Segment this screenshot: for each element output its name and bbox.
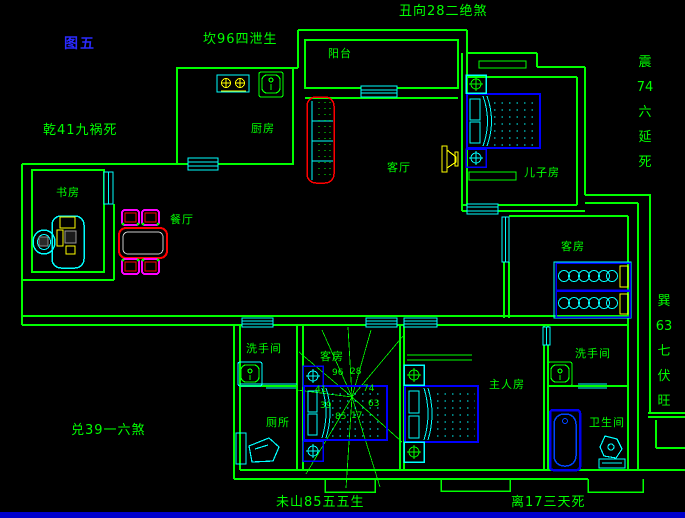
study-partition: [104, 172, 113, 204]
bathroom-toilet: [599, 436, 625, 468]
son-room-window: [467, 204, 498, 214]
washroom-window: [242, 318, 273, 327]
master-nightstand-top: [404, 365, 424, 385]
master-nightstand-bottom: [404, 442, 424, 462]
kitchen-window: [188, 158, 218, 170]
label-room-study: 书房: [56, 187, 80, 198]
master-door-frame: [543, 327, 550, 345]
compass-number-63: 63: [368, 400, 379, 409]
compass-number-17: 17: [351, 412, 362, 421]
label-right-lower: 巽 63 七 伏 旺: [655, 291, 673, 416]
label-bottom-left: 未山85五五生: [276, 496, 365, 509]
tv: [442, 146, 458, 172]
son-nightstand-bottom: [466, 149, 486, 167]
sofa: [307, 97, 334, 183]
label-room-master: 主人房: [489, 379, 525, 390]
toilet-fixture: [236, 433, 279, 464]
keyboard: [66, 246, 75, 254]
master-bed: [405, 386, 478, 442]
compass-number-96: 96: [332, 369, 343, 378]
figure-label: 图五: [64, 37, 96, 51]
pillow: [620, 266, 628, 287]
mid-nightstand-top: [303, 366, 323, 386]
label-room-guest-right: 客房: [561, 241, 585, 252]
label-room-washroom-mid: 洗手间: [246, 343, 282, 354]
compass-number-39: 39: [320, 402, 331, 411]
dining-chairs: [122, 210, 160, 274]
label-room-dining: 餐厅: [170, 214, 194, 225]
kitchen-sink: [259, 72, 283, 97]
label-room-toilet: 厕所: [266, 417, 290, 428]
label-room-washroom-right: 洗手间: [575, 348, 611, 359]
mid-nightstand-bottom: [303, 441, 323, 461]
label-left-upper: 乾41九祸死: [43, 124, 118, 137]
cad-floorplan-canvas: 图五 丑向28二绝煞 坎96四泄生 乾41九祸死 兑39一六煞 未山85五五生 …: [0, 0, 685, 518]
hall-door-frame: [502, 217, 509, 262]
label-room-son: 儿子房: [524, 167, 560, 178]
compass-number-28: 28: [350, 368, 361, 377]
label-room-balcony: 阳台: [328, 48, 352, 59]
washroom-sink-left: [238, 362, 262, 386]
bathtub: [550, 410, 580, 470]
pillow: [620, 294, 628, 314]
study-desk: [52, 216, 84, 268]
floorplan-drawing: [0, 0, 685, 518]
monitor: [65, 231, 76, 243]
label-room-bathroom: 卫生间: [589, 417, 625, 428]
compass-number-41: 41: [315, 386, 326, 395]
label-room-guest-mid: 客房: [320, 351, 344, 362]
corridor-window-1: [366, 318, 397, 327]
son-bed: [467, 94, 540, 148]
label-left-lower: 兑39一六煞: [71, 424, 146, 437]
label-top: 丑向28二绝煞: [399, 5, 488, 18]
compass-number-85: 85: [335, 413, 346, 422]
label-bottom-right: 离17三天死: [511, 496, 586, 509]
corridor-window-2: [404, 318, 437, 327]
balcony-window: [361, 86, 397, 97]
kitchen-walls: [177, 68, 293, 164]
label-top-left: 坎96四泄生: [203, 33, 278, 46]
stove: [217, 75, 249, 92]
label-room-kitchen: 厨房: [251, 123, 275, 134]
label-room-living: 客厅: [387, 162, 411, 173]
compass-number-74: 74: [363, 385, 374, 394]
dining-table: [119, 228, 167, 258]
label-right-upper: 震 74 六 延 死: [636, 52, 654, 177]
guest-twin-beds: [554, 262, 631, 318]
washroom-sink-right: [548, 362, 572, 386]
bottom-window-strip: [0, 512, 685, 518]
